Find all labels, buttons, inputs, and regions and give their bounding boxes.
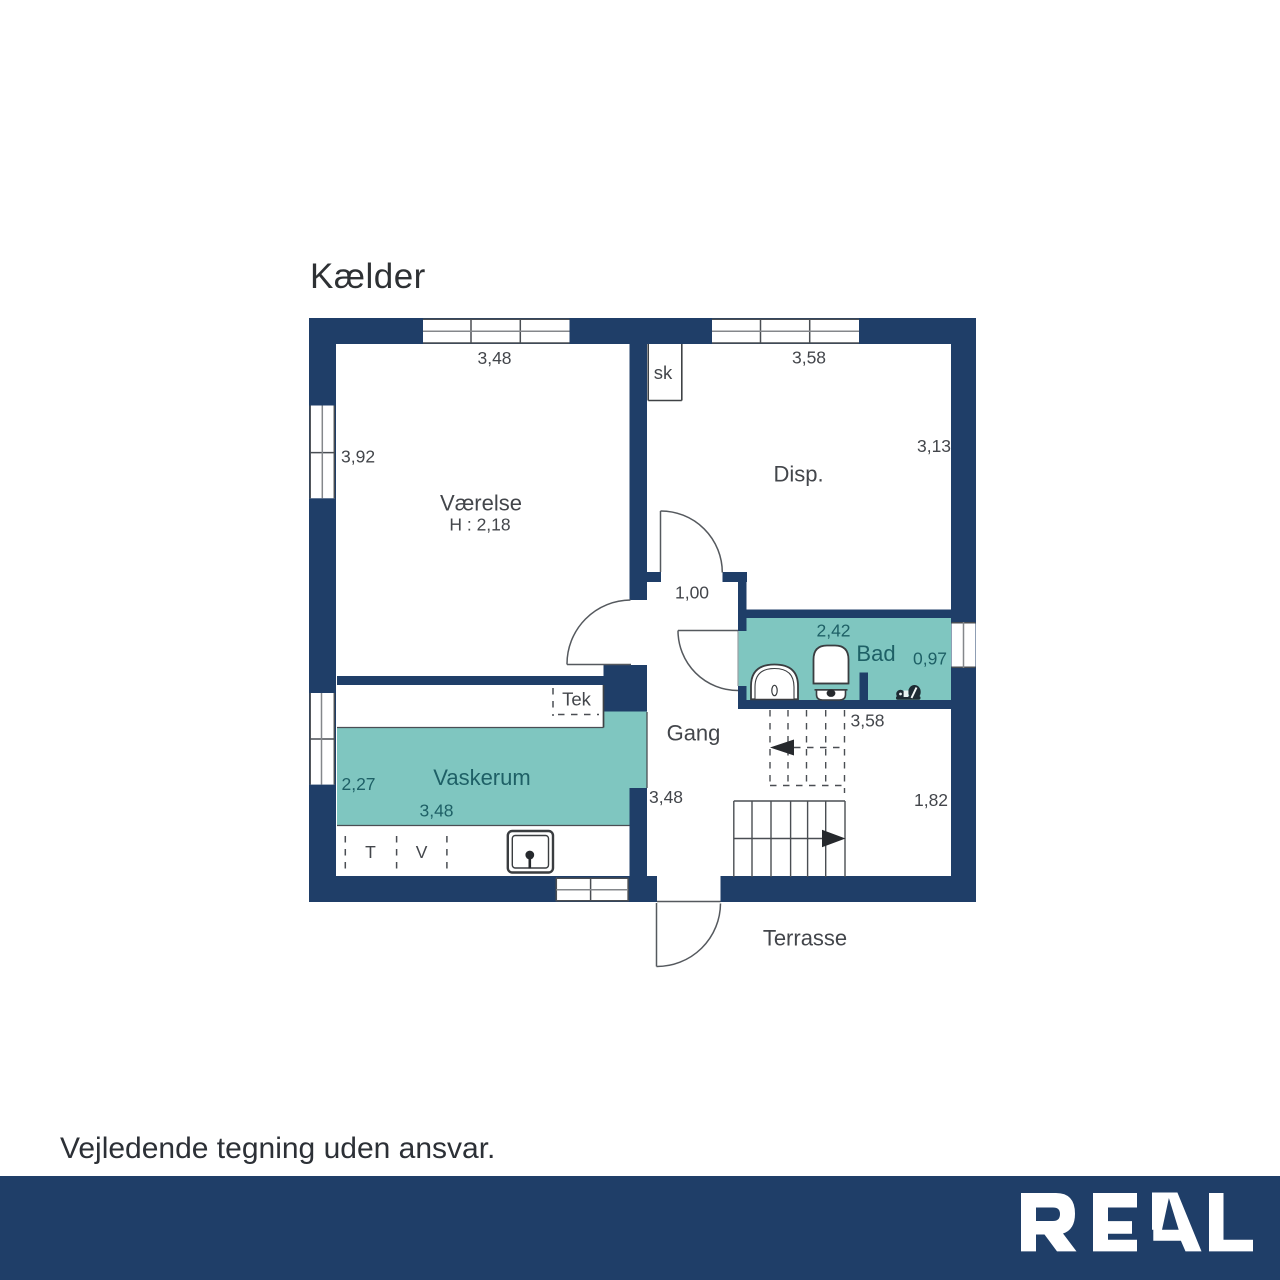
svg-text:3,13: 3,13 — [917, 436, 951, 456]
svg-text:3,48: 3,48 — [477, 348, 511, 368]
svg-text:H : 2,18: H : 2,18 — [449, 515, 510, 535]
svg-text:2,42: 2,42 — [816, 621, 850, 641]
svg-text:sk: sk — [654, 362, 673, 383]
svg-text:1,82: 1,82 — [914, 790, 948, 810]
svg-text:Værelse: Værelse — [440, 491, 522, 516]
svg-text:V: V — [416, 842, 428, 862]
svg-text:3,48: 3,48 — [649, 787, 683, 807]
svg-text:3,58: 3,58 — [850, 711, 884, 731]
svg-text:Gang: Gang — [667, 721, 721, 746]
svg-text:1,00: 1,00 — [675, 583, 709, 603]
svg-text:3,48: 3,48 — [419, 801, 453, 821]
svg-text:0,97: 0,97 — [913, 649, 947, 669]
svg-text:Disp.: Disp. — [773, 462, 823, 487]
svg-text:Tek: Tek — [562, 689, 592, 710]
svg-text:3,92: 3,92 — [341, 447, 375, 467]
svg-text:Kælder: Kælder — [310, 257, 426, 296]
svg-text:T: T — [365, 842, 376, 862]
svg-text:2,27: 2,27 — [341, 774, 375, 794]
svg-text:Vejledende tegning uden ansvar: Vejledende tegning uden ansvar. — [60, 1132, 495, 1165]
svg-text:Terrasse: Terrasse — [763, 926, 847, 951]
svg-text:Vaskerum: Vaskerum — [433, 765, 530, 790]
svg-text:3,58: 3,58 — [792, 348, 826, 368]
svg-text:Bad: Bad — [856, 641, 895, 666]
